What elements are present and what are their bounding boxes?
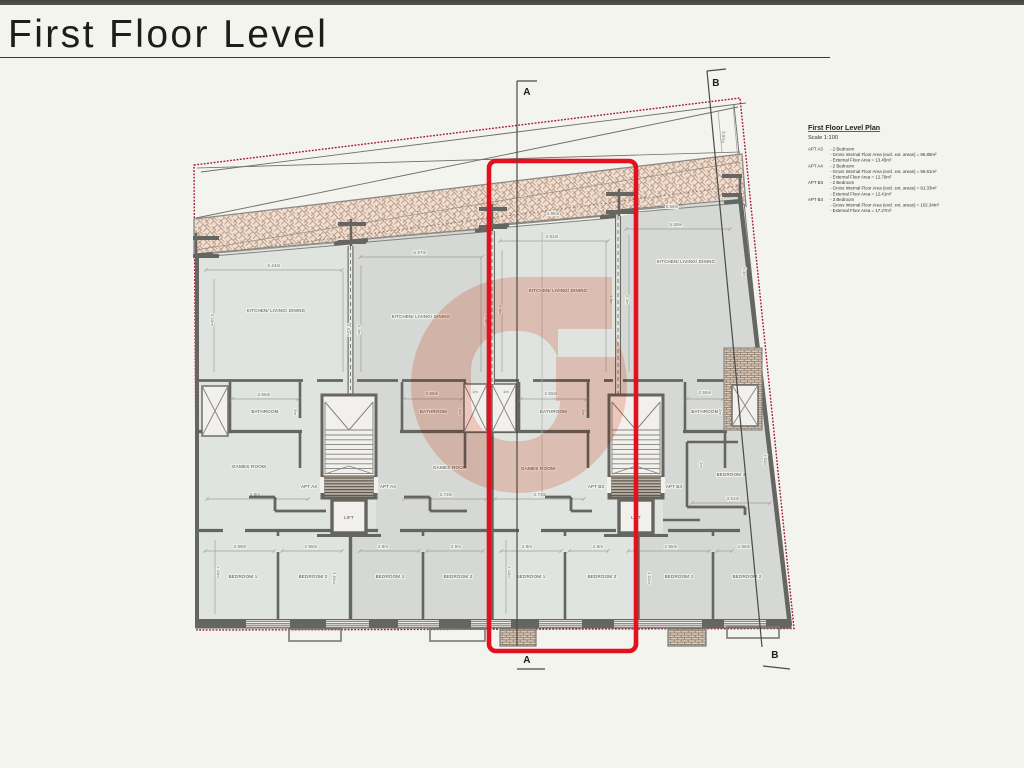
- svg-text:First Floor Level Plan: First Floor Level Plan: [808, 124, 880, 132]
- svg-text:4.11m: 4.11m: [216, 566, 221, 578]
- svg-text:2m: 2m: [293, 409, 298, 415]
- svg-text:5.59m: 5.59m: [670, 222, 683, 227]
- svg-text:APT A4: APT A4: [380, 484, 396, 489]
- svg-text:2.95m: 2.95m: [305, 544, 318, 549]
- svg-text:BEDROOM 1: BEDROOM 1: [665, 574, 694, 579]
- svg-text:A: A: [523, 655, 530, 666]
- svg-text:APT A4: APT A4: [808, 163, 823, 168]
- svg-text:BEDROOM 2: BEDROOM 2: [444, 574, 473, 579]
- svg-text:6.3m: 6.3m: [742, 267, 748, 277]
- svg-text:BEDROOM 1: BEDROOM 1: [376, 574, 405, 579]
- svg-text:KITCHEN/ LIVING/ DINING: KITCHEN/ LIVING/ DINING: [657, 259, 716, 264]
- svg-text:LIFT: LIFT: [344, 515, 354, 520]
- svg-text:5.16m: 5.16m: [210, 314, 215, 326]
- svg-text:6.3m: 6.3m: [357, 325, 362, 334]
- svg-text:5.91m: 5.91m: [346, 324, 351, 336]
- svg-text:APT A3: APT A3: [301, 484, 317, 489]
- svg-text:2.95m: 2.95m: [665, 544, 678, 549]
- svg-text:2.9m: 2.9m: [522, 544, 533, 549]
- svg-text:2.55m: 2.55m: [699, 390, 712, 395]
- svg-text:2.66m: 2.66m: [258, 392, 271, 397]
- svg-text:- Gross Internal Floor Area (e: - Gross Internal Floor Area (excl. ext. …: [830, 152, 937, 157]
- svg-text:4.91m: 4.91m: [546, 234, 559, 239]
- svg-text:3.52m: 3.52m: [647, 572, 652, 584]
- svg-text:- External Floor Area = 17.27m: - External Floor Area = 17.27m²: [830, 208, 892, 213]
- svg-text:- Gross Internal Floor Area (e: - Gross Internal Floor Area (excl. ext. …: [830, 186, 937, 191]
- svg-text:APT B4: APT B4: [808, 197, 824, 202]
- svg-text:5.97m: 5.97m: [414, 250, 427, 255]
- svg-text:2.9m: 2.9m: [593, 544, 604, 549]
- svg-text:A: A: [523, 87, 530, 98]
- svg-text:4.95m: 4.95m: [547, 211, 560, 216]
- svg-text:5.59m: 5.59m: [666, 204, 679, 209]
- svg-text:- 2 Bedroom: - 2 Bedroom: [830, 163, 855, 168]
- svg-text:B: B: [712, 78, 719, 89]
- svg-text:BEDROOM 1: BEDROOM 1: [229, 574, 258, 579]
- svg-text:Scale 1:100: Scale 1:100: [808, 135, 838, 141]
- svg-text:APT B3: APT B3: [808, 180, 824, 185]
- svg-text:BEDROOM 2: BEDROOM 2: [299, 574, 328, 579]
- svg-text:B: B: [771, 650, 778, 661]
- svg-text:- External Floor Area = 12.79m: - External Floor Area = 12.79m²: [830, 175, 892, 180]
- svg-text:6.24m: 6.24m: [268, 263, 281, 268]
- svg-text:- External Floor Area = 12.41m: - External Floor Area = 12.41m²: [830, 191, 892, 196]
- svg-text:BEDROOM 2: BEDROOM 2: [733, 574, 762, 579]
- svg-text:2m: 2m: [699, 462, 704, 468]
- svg-text:- 2 Bedroom: - 2 Bedroom: [830, 147, 855, 152]
- svg-text:APT A3: APT A3: [808, 147, 823, 152]
- svg-text:2.9m: 2.9m: [378, 544, 389, 549]
- svg-text:3.51m: 3.51m: [727, 496, 740, 501]
- svg-text:BEDROOM 2: BEDROOM 2: [588, 574, 617, 579]
- svg-text:- Gross Internal Floor Area (e: - Gross Internal Floor Area (excl. ext. …: [830, 203, 939, 208]
- svg-text:2m: 2m: [718, 409, 723, 415]
- svg-text:3.52m: 3.52m: [332, 572, 337, 584]
- svg-text:4.11m: 4.11m: [507, 566, 512, 578]
- svg-text:- 3 Bedroom: - 3 Bedroom: [830, 197, 855, 202]
- svg-text:BEDROOM 1: BEDROOM 1: [517, 574, 546, 579]
- svg-text:BEDROOM 3: BEDROOM 3: [717, 472, 746, 477]
- svg-text:BATHROOM: BATHROOM: [251, 409, 278, 414]
- svg-text:BATHROOM: BATHROOM: [691, 409, 718, 414]
- svg-text:KITCHEN/ LIVING/ DINING: KITCHEN/ LIVING/ DINING: [247, 308, 306, 313]
- svg-text:- 2 Bedroom: - 2 Bedroom: [830, 180, 855, 185]
- svg-text:2.9m: 2.9m: [451, 544, 462, 549]
- svg-text:GAMES ROOM: GAMES ROOM: [232, 464, 266, 469]
- svg-text:2.86m: 2.86m: [738, 544, 751, 549]
- svg-text:- External Floor Area = 13.45m: - External Floor Area = 13.45m²: [830, 158, 892, 163]
- svg-text:2.99m: 2.99m: [234, 544, 247, 549]
- svg-text:- Gross Internal Floor Area (e: - Gross Internal Floor Area (excl. ext. …: [830, 169, 937, 174]
- svg-text:APT B4: APT B4: [666, 484, 683, 489]
